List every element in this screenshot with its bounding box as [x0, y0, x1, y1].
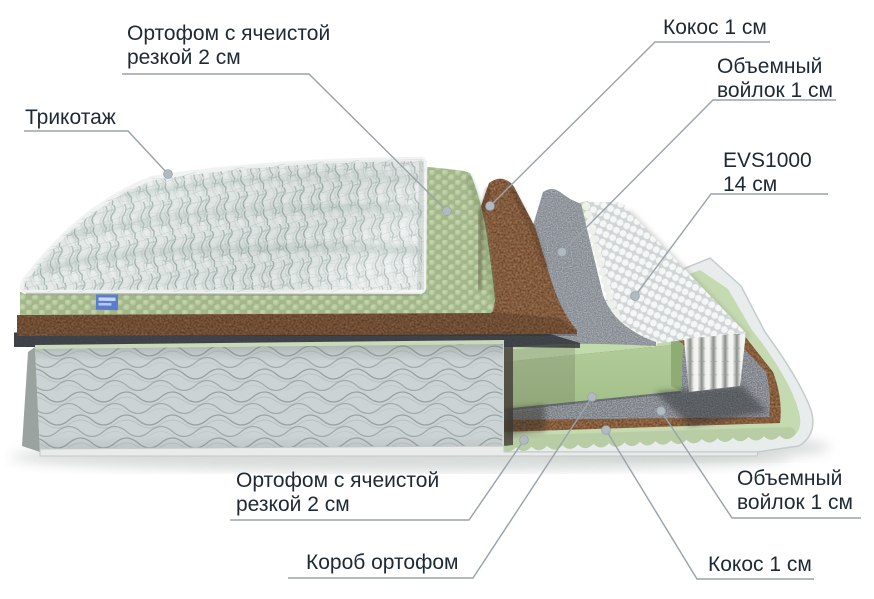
- svg-text:Трикотаж: Трикотаж: [25, 106, 116, 129]
- svg-text:войлок 1 см: войлок 1 см: [737, 491, 853, 514]
- svg-text:резкой 2 см: резкой 2 см: [127, 46, 241, 69]
- svg-text:войлок 1 см: войлок 1 см: [717, 79, 833, 102]
- svg-text:Ортофом с ячеистой: Ортофом с ячеистой: [236, 469, 439, 492]
- svg-text:резкой 2 см: резкой 2 см: [236, 493, 350, 516]
- svg-text:Объемный: Объемный: [717, 55, 822, 78]
- svg-text:Кокос 1 см: Кокос 1 см: [708, 553, 812, 576]
- svg-text:Объемный: Объемный: [737, 467, 842, 490]
- svg-text:EVS1000: EVS1000: [723, 149, 812, 172]
- svg-text:Короб ортофом: Короб ортофом: [306, 551, 459, 574]
- svg-text:Ортофом с ячеистой: Ортофом с ячеистой: [127, 22, 330, 45]
- svg-text:14 см: 14 см: [723, 173, 777, 196]
- svg-text:Кокос 1 см: Кокос 1 см: [663, 16, 767, 39]
